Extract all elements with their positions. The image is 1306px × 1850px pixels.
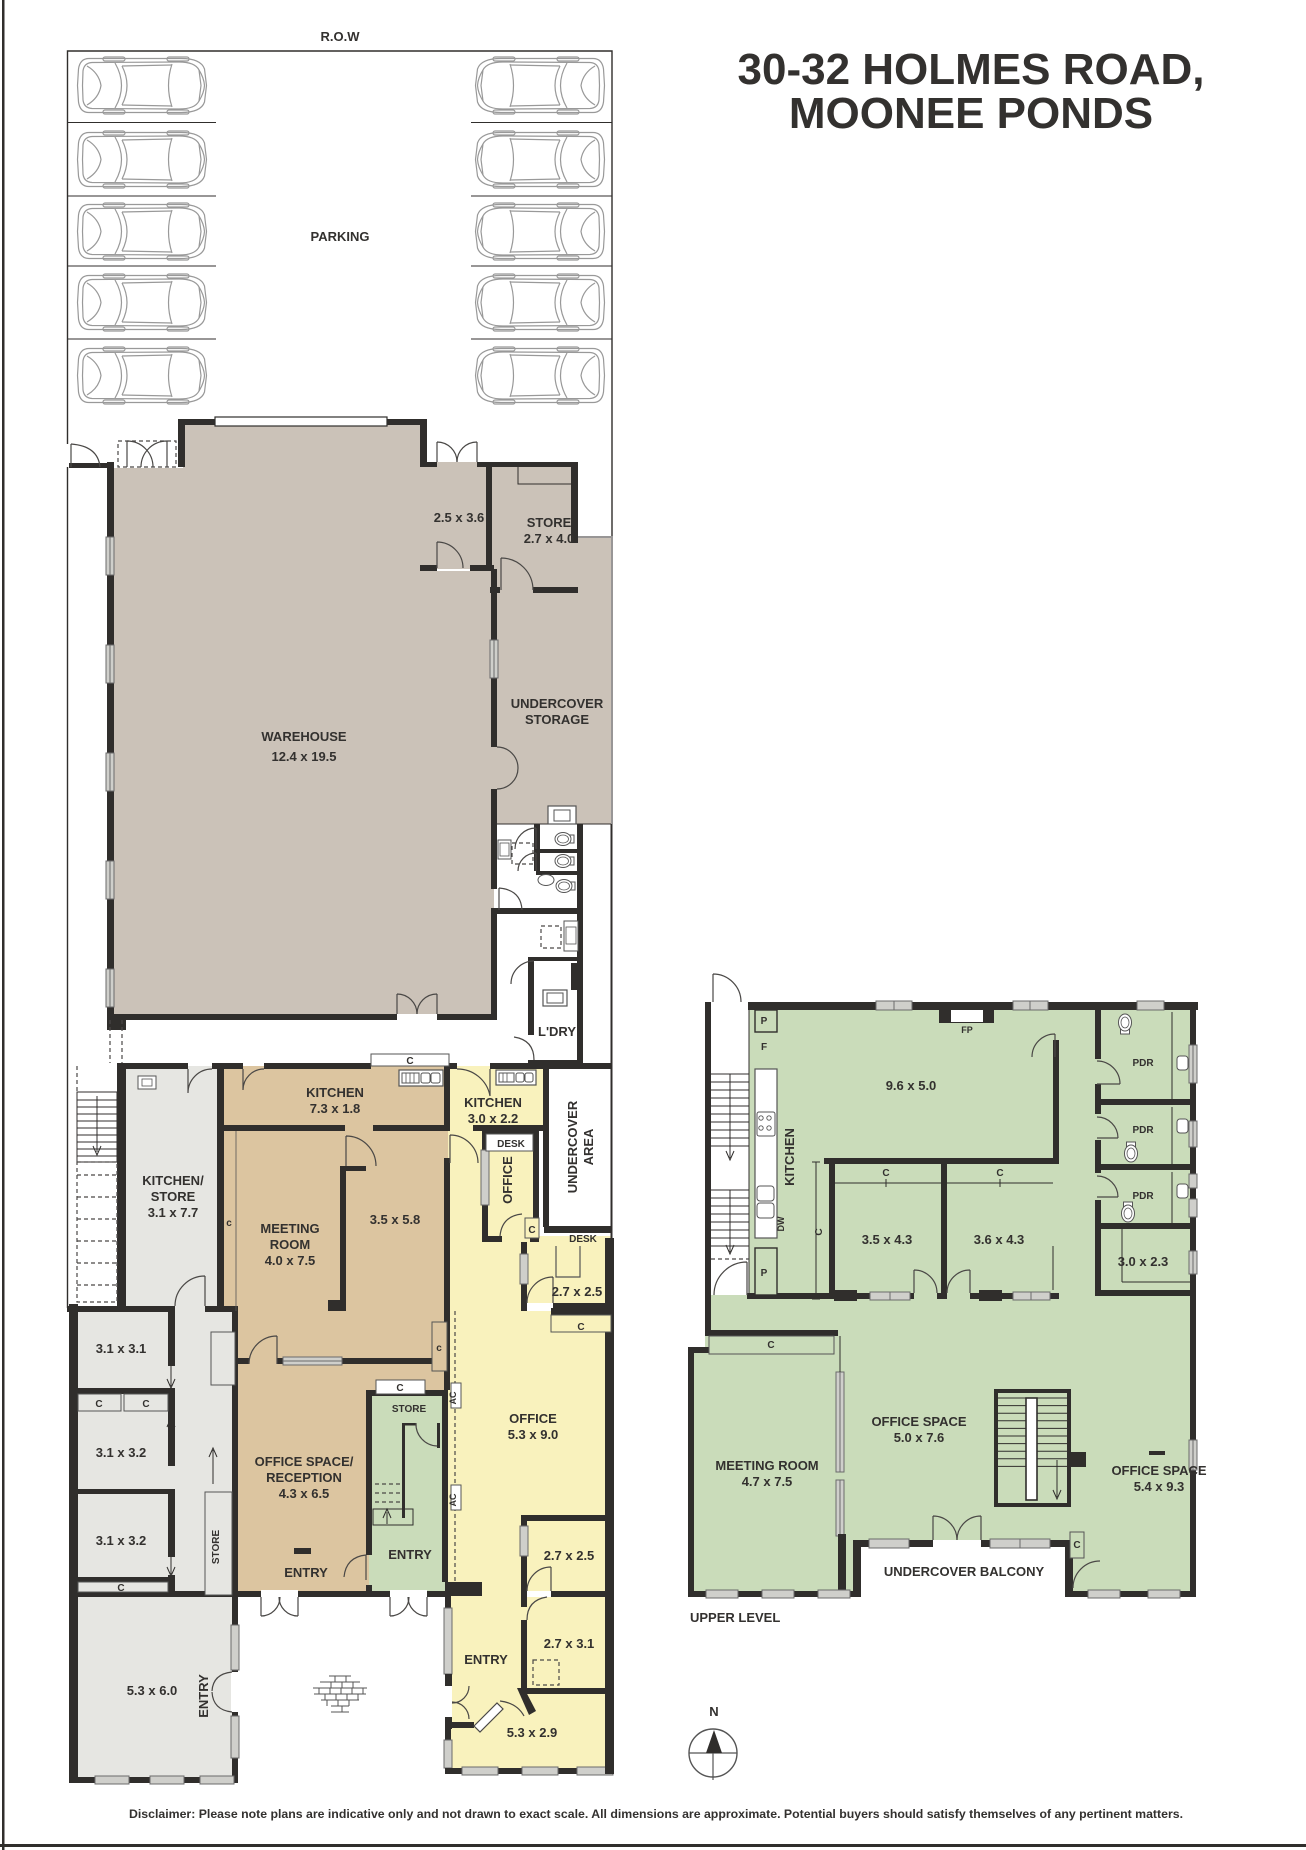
svg-text:DW: DW — [776, 1216, 786, 1231]
svg-text:P: P — [761, 1016, 768, 1027]
svg-text:C: C — [117, 1583, 124, 1594]
svg-text:UPPER LEVEL: UPPER LEVEL — [690, 1610, 780, 1625]
svg-text:2.5 x 3.6: 2.5 x 3.6 — [434, 510, 485, 525]
svg-text:ENTRY: ENTRY — [284, 1565, 328, 1580]
svg-text:C: C — [577, 1322, 584, 1333]
svg-text:12.4 x 19.5: 12.4 x 19.5 — [271, 749, 336, 764]
svg-text:P: P — [761, 1268, 768, 1279]
svg-text:AREA: AREA — [581, 1128, 596, 1165]
svg-text:OFFICE SPACE/: OFFICE SPACE/ — [255, 1454, 354, 1469]
svg-text:ENTRY: ENTRY — [464, 1652, 508, 1667]
svg-text:DESK: DESK — [497, 1139, 526, 1150]
svg-text:F: F — [761, 1042, 767, 1053]
svg-text:ENTRY: ENTRY — [388, 1547, 432, 1562]
svg-text:UNDERCOVER: UNDERCOVER — [511, 696, 604, 711]
svg-text:2.7 x 2.5: 2.7 x 2.5 — [544, 1548, 595, 1563]
svg-text:5.0 x 7.6: 5.0 x 7.6 — [894, 1430, 945, 1445]
svg-text:5.3 x 2.9: 5.3 x 2.9 — [507, 1725, 558, 1740]
svg-text:UNDERCOVER BALCONY: UNDERCOVER BALCONY — [884, 1564, 1045, 1579]
svg-text:7.3 x 1.8: 7.3 x 1.8 — [310, 1101, 361, 1116]
svg-text:C: C — [528, 1225, 535, 1236]
svg-text:C: C — [996, 1168, 1003, 1179]
svg-text:KITCHEN/: KITCHEN/ — [142, 1173, 204, 1188]
svg-text:4.0 x 7.5: 4.0 x 7.5 — [265, 1253, 316, 1268]
svg-text:PDR: PDR — [1132, 1125, 1154, 1136]
svg-text:STORAGE: STORAGE — [525, 712, 589, 727]
svg-text:30-32 HOLMES ROAD,: 30-32 HOLMES ROAD, — [738, 45, 1205, 94]
svg-text:R.O.W: R.O.W — [321, 29, 361, 44]
svg-text:L'DRY: L'DRY — [538, 1024, 576, 1039]
svg-text:FP: FP — [961, 1025, 973, 1035]
svg-text:3.1 x 3.2: 3.1 x 3.2 — [96, 1533, 147, 1548]
svg-text:ROOM: ROOM — [270, 1237, 310, 1252]
svg-text:2.7 x 2.5: 2.7 x 2.5 — [552, 1284, 603, 1299]
svg-text:3.0 x 2.2: 3.0 x 2.2 — [468, 1111, 519, 1126]
svg-text:KITCHEN: KITCHEN — [464, 1095, 522, 1110]
svg-text:N: N — [709, 1704, 718, 1719]
svg-text:C: C — [814, 1228, 825, 1235]
svg-text:MEETING ROOM: MEETING ROOM — [715, 1458, 818, 1473]
svg-text:PARKING: PARKING — [311, 229, 370, 244]
svg-text:4.3 x 6.5: 4.3 x 6.5 — [279, 1486, 330, 1501]
svg-text:3.1 x 3.1: 3.1 x 3.1 — [96, 1341, 147, 1356]
svg-text:WAREHOUSE: WAREHOUSE — [261, 729, 347, 744]
svg-text:9.6 x 5.0: 9.6 x 5.0 — [886, 1078, 937, 1093]
svg-text:C: C — [767, 1340, 774, 1351]
svg-text:C: C — [95, 1399, 102, 1410]
svg-text:3.0 x 2.3: 3.0 x 2.3 — [1118, 1254, 1169, 1269]
svg-text:STORE: STORE — [151, 1189, 196, 1204]
svg-text:c: c — [436, 1343, 442, 1354]
svg-text:PDR: PDR — [1132, 1058, 1154, 1069]
svg-text:C: C — [1073, 1540, 1080, 1551]
svg-text:MOONEE PONDS: MOONEE PONDS — [789, 89, 1153, 138]
svg-text:STORE: STORE — [211, 1530, 222, 1565]
svg-text:AC: AC — [448, 1391, 458, 1404]
svg-text:2.7 x 3.1: 2.7 x 3.1 — [544, 1636, 595, 1651]
svg-text:STORE: STORE — [392, 1404, 427, 1415]
svg-text:RECEPTION: RECEPTION — [266, 1470, 342, 1485]
svg-text:3.6 x 4.3: 3.6 x 4.3 — [974, 1232, 1025, 1247]
svg-text:C: C — [396, 1383, 403, 1394]
svg-text:OFFICE: OFFICE — [500, 1156, 515, 1204]
svg-text:3.5 x 4.3: 3.5 x 4.3 — [862, 1232, 913, 1247]
svg-text:KITCHEN: KITCHEN — [782, 1128, 797, 1186]
svg-text:OFFICE SPACE: OFFICE SPACE — [871, 1414, 966, 1429]
svg-text:3.1 x 7.7: 3.1 x 7.7 — [148, 1205, 199, 1220]
svg-text:OFFICE SPACE: OFFICE SPACE — [1111, 1463, 1206, 1478]
svg-text:UNDERCOVER: UNDERCOVER — [565, 1100, 580, 1193]
svg-text:STORE: STORE — [527, 515, 572, 530]
svg-text:PDR: PDR — [1132, 1191, 1154, 1202]
svg-text:MEETING: MEETING — [260, 1221, 319, 1236]
svg-text:5.3 x 9.0: 5.3 x 9.0 — [508, 1427, 559, 1442]
svg-text:DESK: DESK — [569, 1234, 598, 1245]
svg-text:ENTRY: ENTRY — [196, 1674, 211, 1718]
svg-text:AC: AC — [448, 1493, 458, 1506]
svg-text:C: C — [882, 1168, 889, 1179]
svg-text:3.5 x 5.8: 3.5 x 5.8 — [370, 1212, 421, 1227]
svg-text:5.3 x 6.0: 5.3 x 6.0 — [127, 1683, 178, 1698]
svg-text:2.7 x 4.0: 2.7 x 4.0 — [524, 531, 575, 546]
svg-text:3.1 x 3.2: 3.1 x 3.2 — [96, 1445, 147, 1460]
svg-text:KITCHEN: KITCHEN — [306, 1085, 364, 1100]
svg-text:c: c — [226, 1218, 232, 1229]
svg-text:C: C — [142, 1399, 149, 1410]
svg-text:OFFICE: OFFICE — [509, 1411, 557, 1426]
svg-text:5.4 x 9.3: 5.4 x 9.3 — [1134, 1479, 1185, 1494]
svg-text:4.7 x 7.5: 4.7 x 7.5 — [742, 1474, 793, 1489]
svg-text:C: C — [406, 1056, 413, 1067]
svg-text:Disclaimer: Please note plans: Disclaimer: Please note plans are indica… — [129, 1807, 1183, 1821]
